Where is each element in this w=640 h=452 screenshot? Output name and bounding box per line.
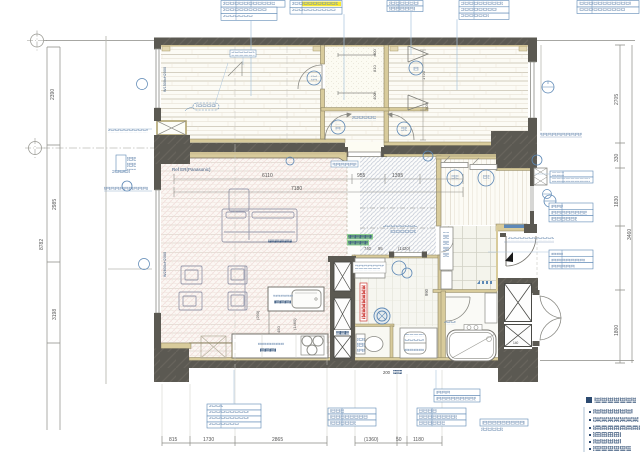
svg-text:(1360): (1360) <box>364 437 379 443</box>
svg-text:7180: 7180 <box>291 186 302 192</box>
svg-text:2390: 2390 <box>50 89 56 100</box>
svg-text:905: 905 <box>424 103 429 110</box>
svg-text:50: 50 <box>396 437 402 443</box>
svg-text:1830: 1830 <box>614 196 620 207</box>
svg-text:2705: 2705 <box>614 94 620 105</box>
svg-text:W1500xH2000: W1500xH2000 <box>163 67 167 92</box>
svg-text:3198: 3198 <box>52 309 58 320</box>
svg-text:3460: 3460 <box>627 229 633 240</box>
svg-text:6110: 6110 <box>262 173 273 179</box>
svg-text:330: 330 <box>614 153 620 162</box>
svg-text:1180: 1180 <box>413 437 424 443</box>
svg-text:2865: 2865 <box>272 437 283 443</box>
svg-text:810: 810 <box>372 65 377 72</box>
svg-text:955: 955 <box>357 173 366 179</box>
svg-text:815: 815 <box>169 437 178 443</box>
svg-text:8782: 8782 <box>39 239 45 250</box>
svg-text:W2600xH2000: W2600xH2000 <box>163 252 167 277</box>
svg-text:400: 400 <box>372 93 377 100</box>
svg-text:(1420): (1420) <box>398 246 411 251</box>
svg-text:140: 140 <box>513 341 519 345</box>
svg-text:450: 450 <box>276 326 281 333</box>
svg-text:200: 200 <box>383 370 391 375</box>
svg-text:(1460): (1460) <box>292 318 297 330</box>
svg-text:1720: 1720 <box>421 70 426 80</box>
svg-text:1800: 1800 <box>614 325 620 336</box>
svg-text:990: 990 <box>424 288 429 296</box>
svg-text:2985: 2985 <box>52 199 58 210</box>
svg-text:1730: 1730 <box>203 437 214 443</box>
svg-text:95: 95 <box>378 246 383 251</box>
svg-text:740: 740 <box>364 246 372 251</box>
svg-text:1395: 1395 <box>392 173 403 179</box>
svg-text:(290): (290) <box>255 310 260 320</box>
svg-text:400: 400 <box>372 49 377 56</box>
svg-text:Ref ER(Panasonic): Ref ER(Panasonic) <box>172 167 211 172</box>
